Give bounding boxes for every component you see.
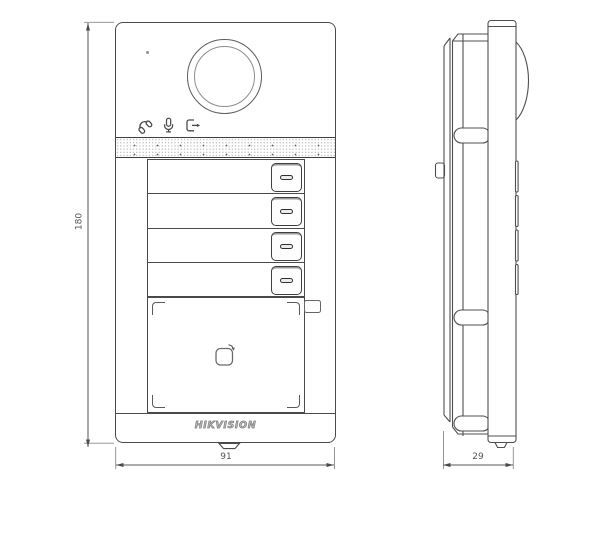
button-profile bbox=[516, 196, 519, 227]
button-profile bbox=[516, 161, 519, 192]
corner-bracket-bottom-left bbox=[152, 395, 165, 408]
depth-dimension-label: 29 bbox=[458, 452, 498, 462]
side-front-body bbox=[488, 21, 516, 443]
button-profile bbox=[516, 265, 519, 295]
call-button-label-slot bbox=[280, 244, 293, 249]
call-button-1 bbox=[271, 163, 302, 192]
corner-bracket-top-left bbox=[152, 302, 165, 315]
brand-logo: HIKVISION bbox=[116, 420, 335, 431]
front-bottom-notch bbox=[219, 443, 240, 448]
camera-dome-profile bbox=[516, 42, 529, 120]
width-dimension-label: 91 bbox=[206, 452, 246, 462]
call-button-label-slot bbox=[280, 175, 293, 180]
height-dimension-label: 180 bbox=[74, 205, 87, 239]
camera-lens-ring bbox=[187, 39, 262, 114]
camera-lens bbox=[194, 46, 255, 107]
call-button-2 bbox=[271, 197, 302, 226]
door-release-icon bbox=[184, 118, 202, 133]
corner-bracket-bottom-right bbox=[287, 395, 300, 408]
call-button-label-slot bbox=[280, 278, 293, 283]
side-left-tab bbox=[436, 163, 445, 178]
side-bottom-notch bbox=[495, 443, 507, 448]
side-view-drawing bbox=[430, 15, 535, 455]
card-tap-icon bbox=[213, 342, 239, 368]
button-profile bbox=[516, 230, 519, 261]
mounting-clip-bottom bbox=[454, 416, 490, 431]
indicator-icon-row bbox=[136, 117, 202, 134]
mounting-clip-middle bbox=[454, 310, 490, 325]
side-screw-cover-tab bbox=[304, 300, 321, 313]
footer-divider bbox=[116, 413, 335, 414]
speaker-grille bbox=[116, 137, 335, 158]
front-view-panel: HIKVISION bbox=[115, 22, 336, 443]
card-reader-area bbox=[147, 297, 305, 413]
mounting-clip-top bbox=[454, 128, 490, 143]
microphone-hole bbox=[146, 51, 149, 54]
call-button-4 bbox=[271, 266, 302, 295]
call-icon bbox=[136, 118, 153, 134]
corner-bracket-top-right bbox=[287, 302, 300, 315]
call-button-3 bbox=[271, 232, 302, 261]
call-button-label-slot bbox=[280, 209, 293, 214]
microphone-icon bbox=[162, 117, 175, 134]
technical-drawing-canvas: HIKVISION bbox=[0, 0, 600, 538]
